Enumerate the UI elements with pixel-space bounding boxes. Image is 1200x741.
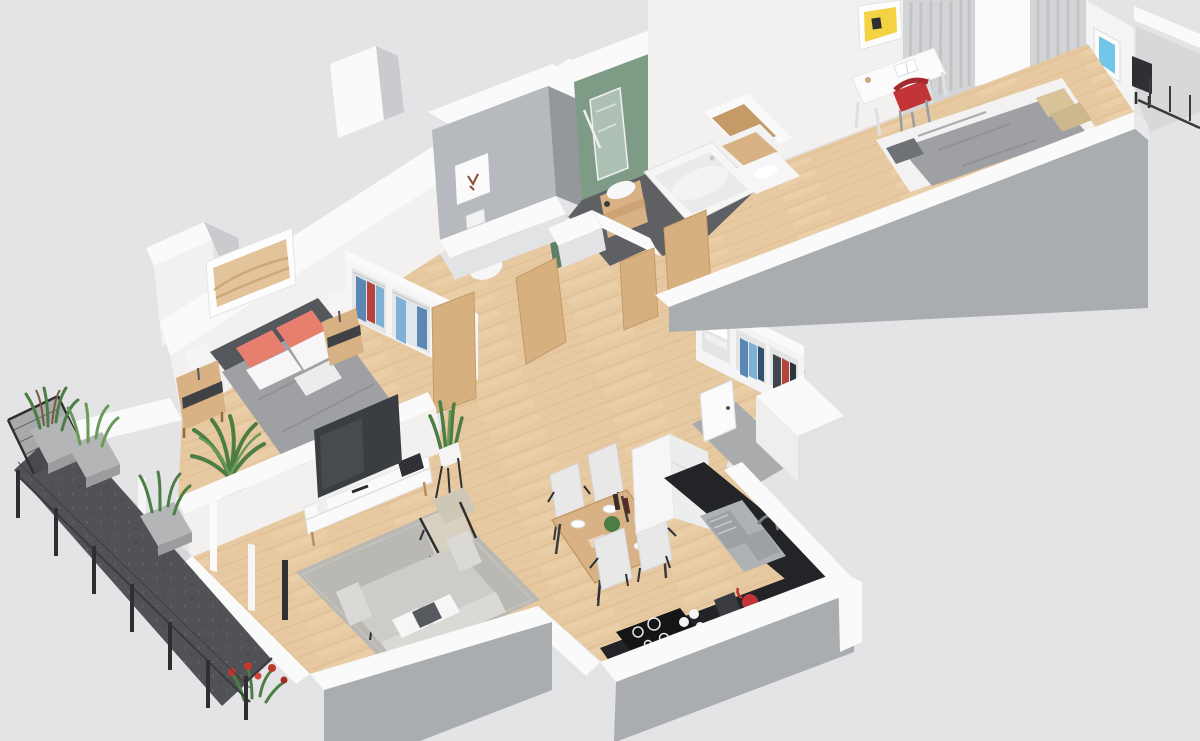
floorplan-stage [0,0,1200,741]
table-plant [604,516,620,532]
bedroom2-door [620,248,658,330]
cup-1 [679,617,689,627]
kitchen-corner-block [838,570,862,652]
floorplan-render [0,0,1200,741]
door-mullion [210,500,217,572]
corner-post-dark [282,560,288,620]
cup-2 [689,609,699,619]
desk-cup [865,77,871,83]
bedroom-door [432,292,476,414]
